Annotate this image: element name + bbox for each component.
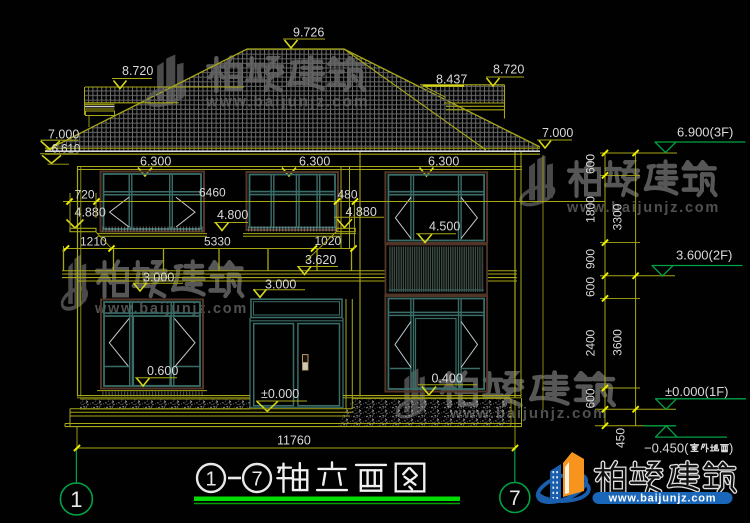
svg-text:480: 480 [338, 188, 358, 202]
svg-text:www.baijunjz.com: www.baijunjz.com [608, 493, 717, 505]
svg-text:3600: 3600 [611, 329, 625, 356]
svg-text:720: 720 [75, 187, 95, 201]
svg-text:8.437: 8.437 [436, 73, 467, 87]
svg-text:450: 450 [614, 428, 628, 448]
svg-text:3300: 3300 [611, 203, 625, 230]
svg-text:3.600(2F): 3.600(2F) [676, 248, 732, 263]
svg-text:5330: 5330 [204, 235, 231, 249]
svg-text:): ) [729, 441, 733, 456]
svg-text:9.726: 9.726 [293, 26, 324, 40]
svg-text:600: 600 [584, 388, 598, 408]
svg-text:1020: 1020 [315, 234, 342, 248]
svg-text:1210: 1210 [80, 235, 107, 249]
svg-text:1800: 1800 [584, 196, 598, 223]
svg-text:6.300: 6.300 [428, 154, 459, 168]
svg-text:600: 600 [584, 154, 598, 174]
svg-text:3.000: 3.000 [265, 277, 296, 291]
svg-text:1: 1 [70, 487, 82, 512]
svg-text:4.500: 4.500 [429, 219, 460, 233]
svg-text:0.400: 0.400 [432, 372, 463, 386]
svg-text:7: 7 [251, 469, 262, 491]
svg-text:6460: 6460 [199, 186, 226, 200]
svg-text:8.720: 8.720 [493, 63, 524, 77]
svg-text:±0.000(1F): ±0.000(1F) [665, 384, 729, 399]
svg-text:3.000: 3.000 [143, 270, 174, 284]
svg-text:6.300: 6.300 [140, 154, 171, 168]
svg-text:2400: 2400 [584, 329, 598, 356]
svg-text:1: 1 [205, 469, 216, 491]
svg-text:900: 900 [584, 249, 598, 269]
svg-text:0.600: 0.600 [147, 364, 178, 378]
svg-text:6.300: 6.300 [299, 154, 330, 168]
svg-text:8.720: 8.720 [122, 64, 153, 78]
svg-text:11760: 11760 [277, 434, 311, 448]
svg-text:4.880: 4.880 [75, 205, 106, 219]
svg-text:6.900(3F): 6.900(3F) [677, 125, 733, 140]
svg-text:±0.000: ±0.000 [261, 387, 299, 401]
svg-text:3.620: 3.620 [305, 253, 336, 267]
svg-text:600: 600 [584, 277, 598, 297]
svg-text:7: 7 [509, 487, 521, 510]
svg-text:7.000: 7.000 [542, 126, 573, 140]
svg-text:7.000: 7.000 [48, 128, 79, 142]
svg-text:−0.450(: −0.450( [644, 441, 689, 456]
svg-text:4.800: 4.800 [217, 208, 248, 222]
